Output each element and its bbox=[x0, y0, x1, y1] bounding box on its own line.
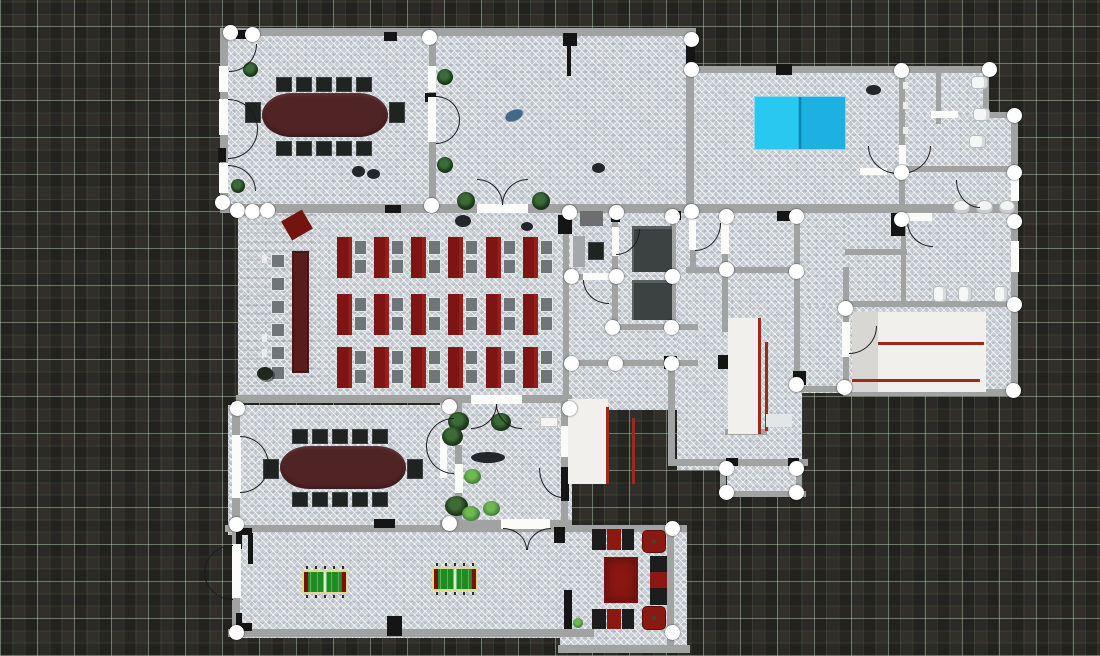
plant-dark[interactable] bbox=[532, 192, 550, 210]
wall-handle[interactable] bbox=[665, 269, 680, 284]
chair-grey[interactable] bbox=[271, 254, 285, 268]
white-mark[interactable] bbox=[262, 334, 267, 342]
classroom-chair[interactable] bbox=[503, 316, 516, 331]
classroom-chair[interactable] bbox=[540, 350, 553, 365]
wall-segment[interactable] bbox=[248, 533, 253, 564]
classroom-chair[interactable] bbox=[391, 240, 404, 255]
wall-handle[interactable] bbox=[562, 205, 577, 220]
classroom-chair[interactable] bbox=[465, 297, 478, 312]
chair-black[interactable] bbox=[352, 492, 368, 507]
wall-handle[interactable] bbox=[230, 401, 245, 416]
wall-handle[interactable] bbox=[230, 203, 245, 218]
floor-plan-canvas[interactable] bbox=[0, 0, 1100, 656]
classroom-chair[interactable] bbox=[391, 316, 404, 331]
wall[interactable] bbox=[668, 358, 675, 466]
wall[interactable] bbox=[843, 301, 1018, 307]
door-opening[interactable] bbox=[428, 97, 436, 142]
chair-black[interactable] bbox=[336, 141, 352, 156]
wall[interactable] bbox=[563, 212, 569, 412]
wall-handle[interactable] bbox=[664, 356, 679, 371]
chair-black[interactable] bbox=[276, 141, 292, 156]
wall-handle[interactable] bbox=[719, 209, 734, 224]
wall[interactable] bbox=[686, 66, 994, 73]
wall-segment[interactable] bbox=[563, 33, 577, 46]
wall-handle[interactable] bbox=[894, 165, 909, 180]
wall-handle[interactable] bbox=[424, 198, 439, 213]
door-opening[interactable] bbox=[219, 163, 228, 193]
elevator-shaft[interactable] bbox=[632, 280, 672, 320]
landing[interactable] bbox=[766, 414, 792, 427]
scooter-figure[interactable] bbox=[471, 452, 505, 463]
plant-light[interactable] bbox=[573, 618, 583, 628]
wall-handle[interactable] bbox=[608, 356, 623, 371]
door-opening[interactable] bbox=[477, 204, 528, 213]
classroom-desk[interactable] bbox=[337, 294, 352, 335]
door-opening[interactable] bbox=[219, 99, 228, 135]
plant-dark[interactable] bbox=[457, 192, 475, 210]
sofa-red[interactable] bbox=[607, 609, 621, 629]
wall-handle[interactable] bbox=[982, 62, 997, 77]
classroom-chair[interactable] bbox=[465, 316, 478, 331]
wall-handle[interactable] bbox=[229, 625, 244, 640]
chair-black[interactable] bbox=[312, 492, 328, 507]
chair-black[interactable] bbox=[352, 429, 368, 444]
classroom-chair[interactable] bbox=[503, 259, 516, 274]
wall-handle[interactable] bbox=[684, 204, 699, 219]
red-line[interactable] bbox=[632, 418, 635, 484]
wall[interactable] bbox=[220, 28, 696, 36]
white-mark[interactable] bbox=[903, 102, 908, 109]
classroom-desk[interactable] bbox=[486, 294, 501, 335]
white-mark[interactable] bbox=[262, 255, 267, 263]
classroom-desk[interactable] bbox=[486, 347, 501, 388]
wall-handle[interactable] bbox=[719, 485, 734, 500]
classroom-chair[interactable] bbox=[428, 350, 441, 365]
toilet[interactable] bbox=[973, 108, 990, 121]
wall-handle[interactable] bbox=[789, 485, 804, 500]
classroom-desk[interactable] bbox=[448, 347, 463, 388]
door-opening[interactable] bbox=[455, 464, 463, 493]
chair-black[interactable] bbox=[276, 77, 292, 92]
door-opening[interactable] bbox=[905, 213, 932, 221]
door-opening[interactable] bbox=[583, 273, 610, 280]
wall-segment[interactable] bbox=[567, 46, 571, 76]
classroom-chair[interactable] bbox=[354, 297, 367, 312]
wall-handle[interactable] bbox=[229, 517, 244, 532]
wall-handle[interactable] bbox=[665, 209, 680, 224]
cabinet[interactable] bbox=[580, 211, 603, 226]
figure-dark[interactable] bbox=[367, 169, 380, 179]
classroom-chair[interactable] bbox=[428, 297, 441, 312]
classroom-chair[interactable] bbox=[540, 259, 553, 274]
chair-black[interactable] bbox=[372, 492, 388, 507]
wall[interactable] bbox=[561, 402, 568, 528]
wall-handle[interactable] bbox=[719, 262, 734, 277]
red-line[interactable] bbox=[852, 379, 980, 382]
figure-dark[interactable] bbox=[352, 166, 365, 177]
classroom-desk[interactable] bbox=[486, 237, 501, 278]
plant-light[interactable] bbox=[462, 506, 480, 521]
classroom-chair[interactable] bbox=[503, 369, 516, 384]
plant-dark[interactable] bbox=[437, 157, 453, 173]
wall-handle[interactable] bbox=[564, 356, 579, 371]
chair-black[interactable] bbox=[588, 242, 604, 260]
lounge-coffee-table[interactable] bbox=[604, 557, 638, 603]
wall[interactable] bbox=[794, 212, 800, 390]
wall-segment[interactable] bbox=[564, 590, 572, 629]
wall-handle[interactable] bbox=[664, 320, 679, 335]
wall-handle[interactable] bbox=[665, 521, 680, 536]
chair-black[interactable] bbox=[407, 459, 423, 479]
wall-handle[interactable] bbox=[894, 212, 909, 227]
classroom-chair[interactable] bbox=[391, 259, 404, 274]
sofa-black[interactable] bbox=[592, 609, 606, 629]
classroom-chair[interactable] bbox=[540, 240, 553, 255]
classroom-chair[interactable] bbox=[354, 259, 367, 274]
plant-dark[interactable] bbox=[437, 69, 453, 85]
chair-grey[interactable] bbox=[271, 300, 285, 314]
wall-handle[interactable] bbox=[684, 62, 699, 77]
classroom-chair[interactable] bbox=[465, 369, 478, 384]
wall[interactable] bbox=[845, 249, 907, 255]
classroom-chair[interactable] bbox=[428, 369, 441, 384]
classroom-desk[interactable] bbox=[374, 347, 389, 388]
red-line[interactable] bbox=[606, 407, 609, 484]
classroom-chair[interactable] bbox=[503, 297, 516, 312]
classroom-chair[interactable] bbox=[391, 350, 404, 365]
white-mark[interactable] bbox=[262, 349, 267, 357]
foosball-table[interactable] bbox=[432, 567, 478, 591]
bench[interactable] bbox=[540, 417, 558, 427]
wall-handle[interactable] bbox=[609, 269, 624, 284]
chair-black[interactable] bbox=[312, 429, 328, 444]
wall-handle[interactable] bbox=[789, 209, 804, 224]
wall-handle[interactable] bbox=[789, 377, 804, 392]
wall-handle[interactable] bbox=[789, 461, 804, 476]
classroom-chair[interactable] bbox=[391, 297, 404, 312]
classroom-desk[interactable] bbox=[411, 237, 426, 278]
door-opening[interactable] bbox=[721, 219, 729, 254]
wall-handle[interactable] bbox=[215, 195, 230, 210]
wall-handle[interactable] bbox=[442, 516, 457, 531]
chair-black[interactable] bbox=[336, 77, 352, 92]
chair-grey[interactable] bbox=[271, 346, 285, 360]
classroom-chair[interactable] bbox=[354, 316, 367, 331]
wall-handle[interactable] bbox=[1007, 297, 1022, 312]
wall-handle[interactable] bbox=[562, 401, 577, 416]
wall-handle[interactable] bbox=[789, 264, 804, 279]
wall-segment[interactable] bbox=[384, 32, 397, 41]
chair-grey[interactable] bbox=[271, 323, 285, 337]
classroom-chair[interactable] bbox=[354, 369, 367, 384]
chair-black[interactable] bbox=[372, 429, 388, 444]
toilet[interactable] bbox=[969, 135, 986, 148]
figure-dark[interactable] bbox=[866, 85, 881, 95]
classroom-chair[interactable] bbox=[428, 240, 441, 255]
wall-segment[interactable] bbox=[776, 64, 792, 75]
wall-handle[interactable] bbox=[665, 625, 680, 640]
figure-dark[interactable] bbox=[592, 163, 605, 173]
conference-table[interactable] bbox=[262, 93, 388, 137]
door-opening[interactable] bbox=[501, 519, 550, 529]
chair-grey[interactable] bbox=[271, 277, 285, 291]
sofa-black[interactable] bbox=[650, 556, 667, 572]
swimming-pool[interactable] bbox=[754, 96, 846, 150]
wall-handle[interactable] bbox=[422, 30, 437, 45]
chair-black[interactable] bbox=[296, 141, 312, 156]
classroom-chair[interactable] bbox=[540, 316, 553, 331]
wall-handle[interactable] bbox=[894, 63, 909, 78]
sofa-black[interactable] bbox=[592, 529, 606, 550]
sofa-black[interactable] bbox=[622, 529, 634, 550]
wall-segment[interactable] bbox=[374, 519, 395, 528]
foosball-table[interactable] bbox=[302, 570, 348, 594]
toilet[interactable] bbox=[958, 286, 972, 302]
classroom-desk[interactable] bbox=[523, 237, 538, 278]
door-opening[interactable] bbox=[471, 395, 522, 404]
swivel-chair[interactable] bbox=[257, 367, 273, 380]
wall-handle[interactable] bbox=[719, 461, 734, 476]
conference-table[interactable] bbox=[280, 446, 406, 489]
classroom-chair[interactable] bbox=[465, 350, 478, 365]
classroom-desk[interactable] bbox=[337, 237, 352, 278]
classroom-desk[interactable] bbox=[411, 294, 426, 335]
classroom-desk[interactable] bbox=[411, 347, 426, 388]
classroom-desk[interactable] bbox=[337, 347, 352, 388]
door-opening[interactable] bbox=[931, 111, 958, 118]
wall-handle[interactable] bbox=[1007, 214, 1022, 229]
red-line[interactable] bbox=[758, 318, 761, 434]
wall[interactable] bbox=[610, 324, 698, 330]
chair-black[interactable] bbox=[316, 141, 332, 156]
sofa-red[interactable] bbox=[650, 572, 667, 588]
classroom-chair[interactable] bbox=[428, 259, 441, 274]
chair-black[interactable] bbox=[296, 77, 312, 92]
chair-grey[interactable] bbox=[271, 366, 285, 380]
wall[interactable] bbox=[899, 70, 905, 212]
classroom-chair[interactable] bbox=[391, 369, 404, 384]
wall-handle[interactable] bbox=[442, 399, 457, 414]
wall-segment[interactable] bbox=[554, 527, 565, 543]
wall-handle[interactable] bbox=[838, 301, 853, 316]
chair-black[interactable] bbox=[356, 77, 372, 92]
wall-handle[interactable] bbox=[223, 25, 238, 40]
toilet[interactable] bbox=[933, 286, 947, 302]
wall-handle[interactable] bbox=[1007, 165, 1022, 180]
sofa-red[interactable] bbox=[607, 529, 621, 550]
chair-black[interactable] bbox=[332, 429, 348, 444]
door-opening[interactable] bbox=[428, 66, 436, 92]
wall[interactable] bbox=[686, 267, 802, 273]
figure-dark[interactable] bbox=[455, 215, 471, 227]
classroom-chair[interactable] bbox=[540, 369, 553, 384]
room-floor[interactable] bbox=[432, 30, 692, 213]
wall-handle[interactable] bbox=[245, 204, 260, 219]
red-line[interactable] bbox=[878, 342, 984, 345]
door-swing-arc bbox=[204, 545, 233, 573]
wall-handle[interactable] bbox=[609, 205, 624, 220]
classroom-chair[interactable] bbox=[465, 240, 478, 255]
classroom-chair[interactable] bbox=[465, 259, 478, 274]
white-mark[interactable] bbox=[903, 82, 908, 89]
chair-black[interactable] bbox=[292, 429, 308, 444]
wall-handle[interactable] bbox=[837, 380, 852, 395]
sofa-black[interactable] bbox=[622, 609, 634, 629]
toilet[interactable] bbox=[994, 286, 1008, 302]
door-swing-arc bbox=[204, 572, 233, 600]
sink[interactable] bbox=[999, 200, 1015, 214]
chair-black[interactable] bbox=[316, 77, 332, 92]
classroom-chair[interactable] bbox=[503, 350, 516, 365]
classroom-desk[interactable] bbox=[523, 294, 538, 335]
white-mark[interactable] bbox=[903, 127, 908, 134]
door-opening[interactable] bbox=[219, 66, 228, 92]
classroom-chair[interactable] bbox=[540, 297, 553, 312]
chair-black[interactable] bbox=[389, 102, 405, 123]
classroom-desk[interactable] bbox=[448, 237, 463, 278]
wall-handle[interactable] bbox=[260, 203, 275, 218]
wall-handle[interactable] bbox=[684, 32, 699, 47]
plant-light[interactable] bbox=[464, 469, 481, 484]
wall-handle[interactable] bbox=[564, 269, 579, 284]
classroom-chair[interactable] bbox=[503, 240, 516, 255]
wall-handle[interactable] bbox=[1006, 383, 1021, 398]
classroom-chair[interactable] bbox=[428, 316, 441, 331]
wall[interactable] bbox=[668, 459, 808, 466]
classroom-desk[interactable] bbox=[523, 347, 538, 388]
wall-segment[interactable] bbox=[387, 616, 402, 636]
classroom-desk[interactable] bbox=[374, 237, 389, 278]
sofa-black[interactable] bbox=[650, 588, 667, 605]
staircase[interactable] bbox=[728, 318, 759, 434]
chair-black[interactable] bbox=[332, 492, 348, 507]
wall-handle[interactable] bbox=[245, 27, 260, 42]
wall-handle[interactable] bbox=[1007, 108, 1022, 123]
wall-handle[interactable] bbox=[605, 320, 620, 335]
wall[interactable] bbox=[228, 629, 594, 637]
classroom-chair[interactable] bbox=[354, 240, 367, 255]
stage-table[interactable] bbox=[292, 251, 309, 373]
wall-segment[interactable] bbox=[385, 205, 401, 213]
classroom-desk[interactable] bbox=[448, 294, 463, 335]
armchair[interactable] bbox=[642, 606, 666, 630]
wall-segment[interactable] bbox=[218, 148, 226, 162]
sofa-grey[interactable] bbox=[570, 236, 585, 267]
armchair[interactable] bbox=[642, 530, 666, 553]
figure-dark[interactable] bbox=[521, 222, 533, 231]
toilet[interactable] bbox=[971, 76, 988, 89]
chair-black[interactable] bbox=[292, 492, 308, 507]
door-opening[interactable] bbox=[232, 544, 241, 598]
classroom-chair[interactable] bbox=[354, 350, 367, 365]
classroom-desk[interactable] bbox=[374, 294, 389, 335]
chair-black[interactable] bbox=[356, 141, 372, 156]
door-opening[interactable] bbox=[1011, 241, 1019, 272]
plant-light[interactable] bbox=[483, 501, 500, 516]
